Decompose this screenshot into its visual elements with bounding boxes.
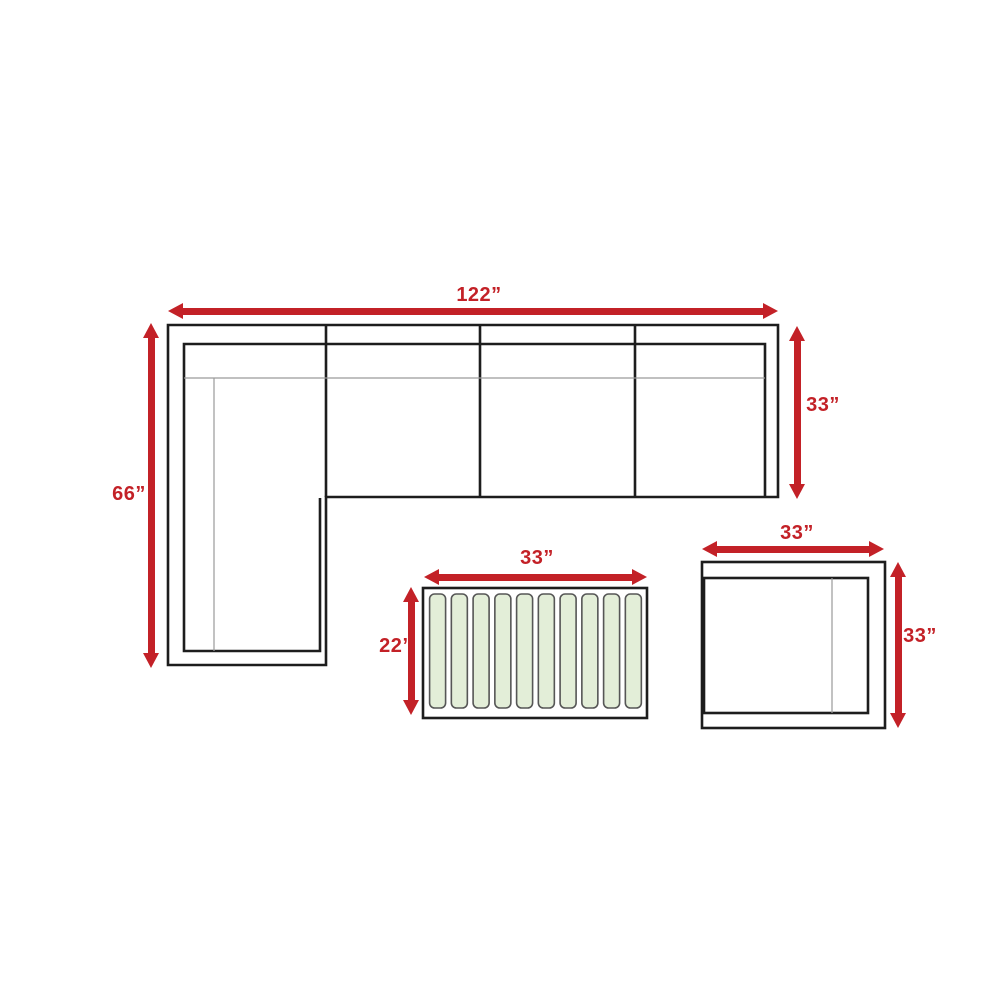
coffee-table-slat [517,594,533,708]
coffee-table-slat [495,594,511,708]
side-chair [702,562,885,728]
arrowhead-left-icon [424,569,439,585]
arrowhead-down-icon [890,713,906,728]
sofa-width-dimension-label: 122” [456,285,501,305]
arrow-shaft [148,338,155,653]
arrowhead-left-icon [702,541,717,557]
arrowhead-down-icon [403,700,419,715]
sofa-height-dimension-label: 66” [112,484,146,504]
sofa-depth-arrow [788,326,806,499]
arrow-shaft [439,574,632,581]
arrowhead-down-icon [789,484,805,499]
coffee-table-slat [451,594,467,708]
coffee-table-slat [582,594,598,708]
arrowhead-up-icon [789,326,805,341]
arrowhead-right-icon [869,541,884,557]
coffee-table-slat [560,594,576,708]
sofa-depth-dimension-label: 33” [806,395,840,415]
furniture-dimensions-diagram: 122” 66” 33” 33” 22” 33” 33” [0,0,1000,1000]
arrowhead-up-icon [403,587,419,602]
chair-outer-outline [702,562,885,728]
chair-width-dimension-label: 33” [780,523,814,543]
chair-depth-dimension-label: 33” [903,626,937,646]
arrowhead-right-icon [763,303,778,319]
arrowhead-up-icon [143,323,159,338]
coffee-table-slat [625,594,641,708]
arrowhead-down-icon [143,653,159,668]
coffee-table-slat [430,594,446,708]
arrow-shaft [717,546,869,553]
coffee-table-slat [604,594,620,708]
arrowhead-left-icon [168,303,183,319]
coffee-table [423,588,647,718]
arrowhead-up-icon [890,562,906,577]
arrow-shaft [183,308,763,315]
coffee-table-width-dimension-label: 33” [520,548,554,568]
coffee-table-slat [473,594,489,708]
arrow-shaft [794,341,801,484]
arrow-shaft [895,577,902,713]
arrowhead-right-icon [632,569,647,585]
coffee-table-slat [538,594,554,708]
coffee-table-width-arrow [424,568,647,586]
coffee-table-depth-dimension-label: 22” [379,636,413,656]
